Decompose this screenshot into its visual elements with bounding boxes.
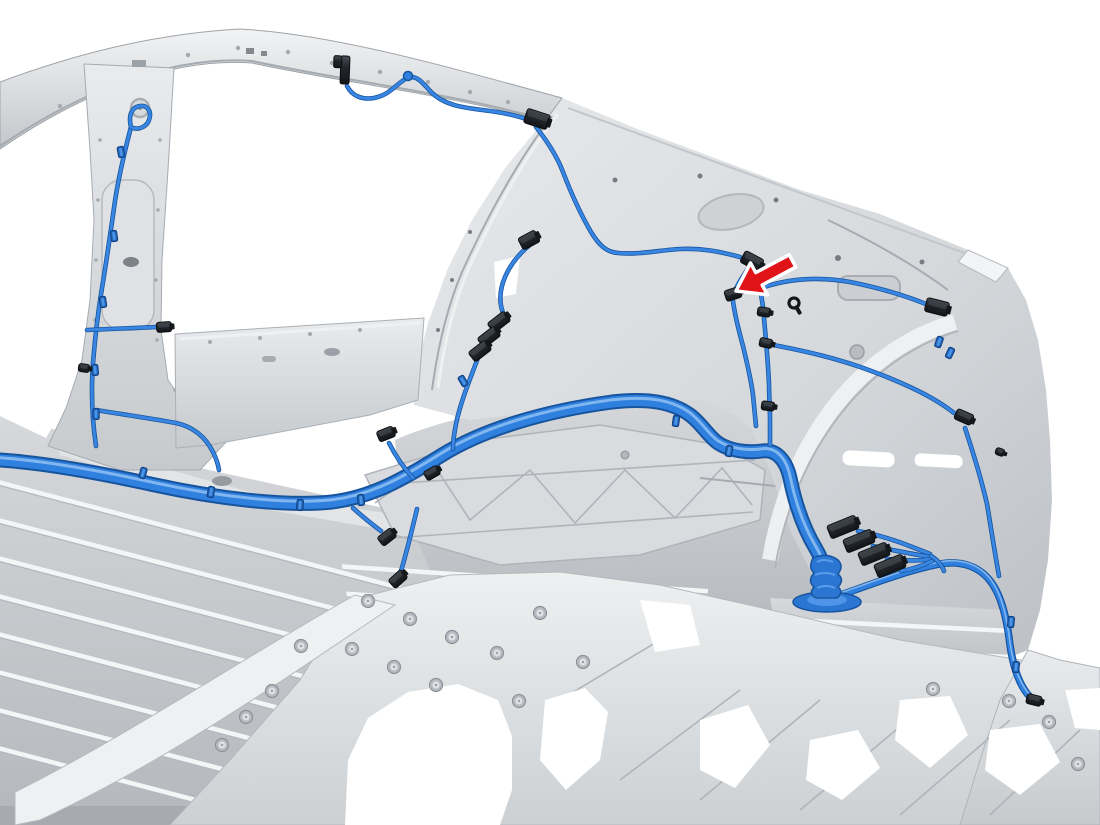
harness-clip-dot: [404, 72, 413, 81]
harness-clip: [725, 445, 733, 457]
bolt-center: [409, 618, 411, 620]
bolt-center: [300, 645, 302, 647]
harness-clip: [1012, 661, 1019, 673]
bolt-center: [393, 666, 395, 668]
bolt-center: [1048, 721, 1050, 723]
harness-clip-shine: [95, 410, 98, 418]
bolt-center: [1008, 700, 1010, 702]
harness-clip: [117, 146, 125, 158]
floor-bolt: [621, 451, 629, 459]
bolt-center: [351, 648, 353, 650]
harness-clip: [91, 364, 98, 376]
harness-clip: [93, 409, 99, 420]
cluster-mid-connector-nose: [768, 310, 774, 316]
illustration-stage: [0, 0, 1100, 825]
quarter-white-slot-2: [914, 453, 963, 468]
rail-bracket-2: [261, 51, 267, 56]
harness-clip: [110, 230, 118, 242]
pillar-branch-connector-top: [158, 323, 169, 328]
quarter-hole: [850, 345, 864, 359]
rocker-connector-1: [376, 425, 399, 443]
pillar-branch-connector-nose: [169, 323, 174, 329]
bolt-center: [518, 700, 520, 702]
bolt-center: [367, 600, 369, 602]
pillar-stub-connector-nose: [87, 366, 93, 371]
body-harness-illustration: [0, 0, 1100, 825]
bolt-center: [435, 684, 437, 686]
beltline-hole: [324, 348, 340, 356]
grommet-bellows: [811, 555, 842, 598]
harness-clip: [296, 499, 303, 511]
bolt-center: [582, 661, 584, 663]
bundle-clip-connector-nose: [772, 404, 778, 410]
quarter-white-slot-1: [842, 450, 895, 468]
bolt-center: [496, 652, 498, 654]
floor-hole: [212, 476, 232, 486]
rail-bracket-1: [246, 48, 254, 54]
bolt-center: [451, 636, 453, 638]
bolt-center: [221, 744, 223, 746]
harness-clip: [1007, 616, 1014, 628]
bolt-center: [1077, 763, 1079, 765]
roof-antenna-connector-flag: [334, 56, 342, 68]
pillar-branch-connector: [156, 321, 175, 332]
harness-clip: [99, 296, 107, 308]
harness-clip: [207, 486, 215, 498]
beltline-slot: [262, 356, 276, 362]
bolt-center: [245, 716, 247, 718]
bolt-center: [932, 688, 934, 690]
harness-clip: [672, 415, 680, 427]
bolt-center: [539, 612, 541, 614]
b-pillar-oval-hole: [123, 257, 139, 267]
b-pillar-recess: [102, 180, 154, 330]
harness-clip: [357, 494, 364, 506]
b-pillar-slot: [132, 60, 146, 67]
bolt-center: [271, 690, 273, 692]
